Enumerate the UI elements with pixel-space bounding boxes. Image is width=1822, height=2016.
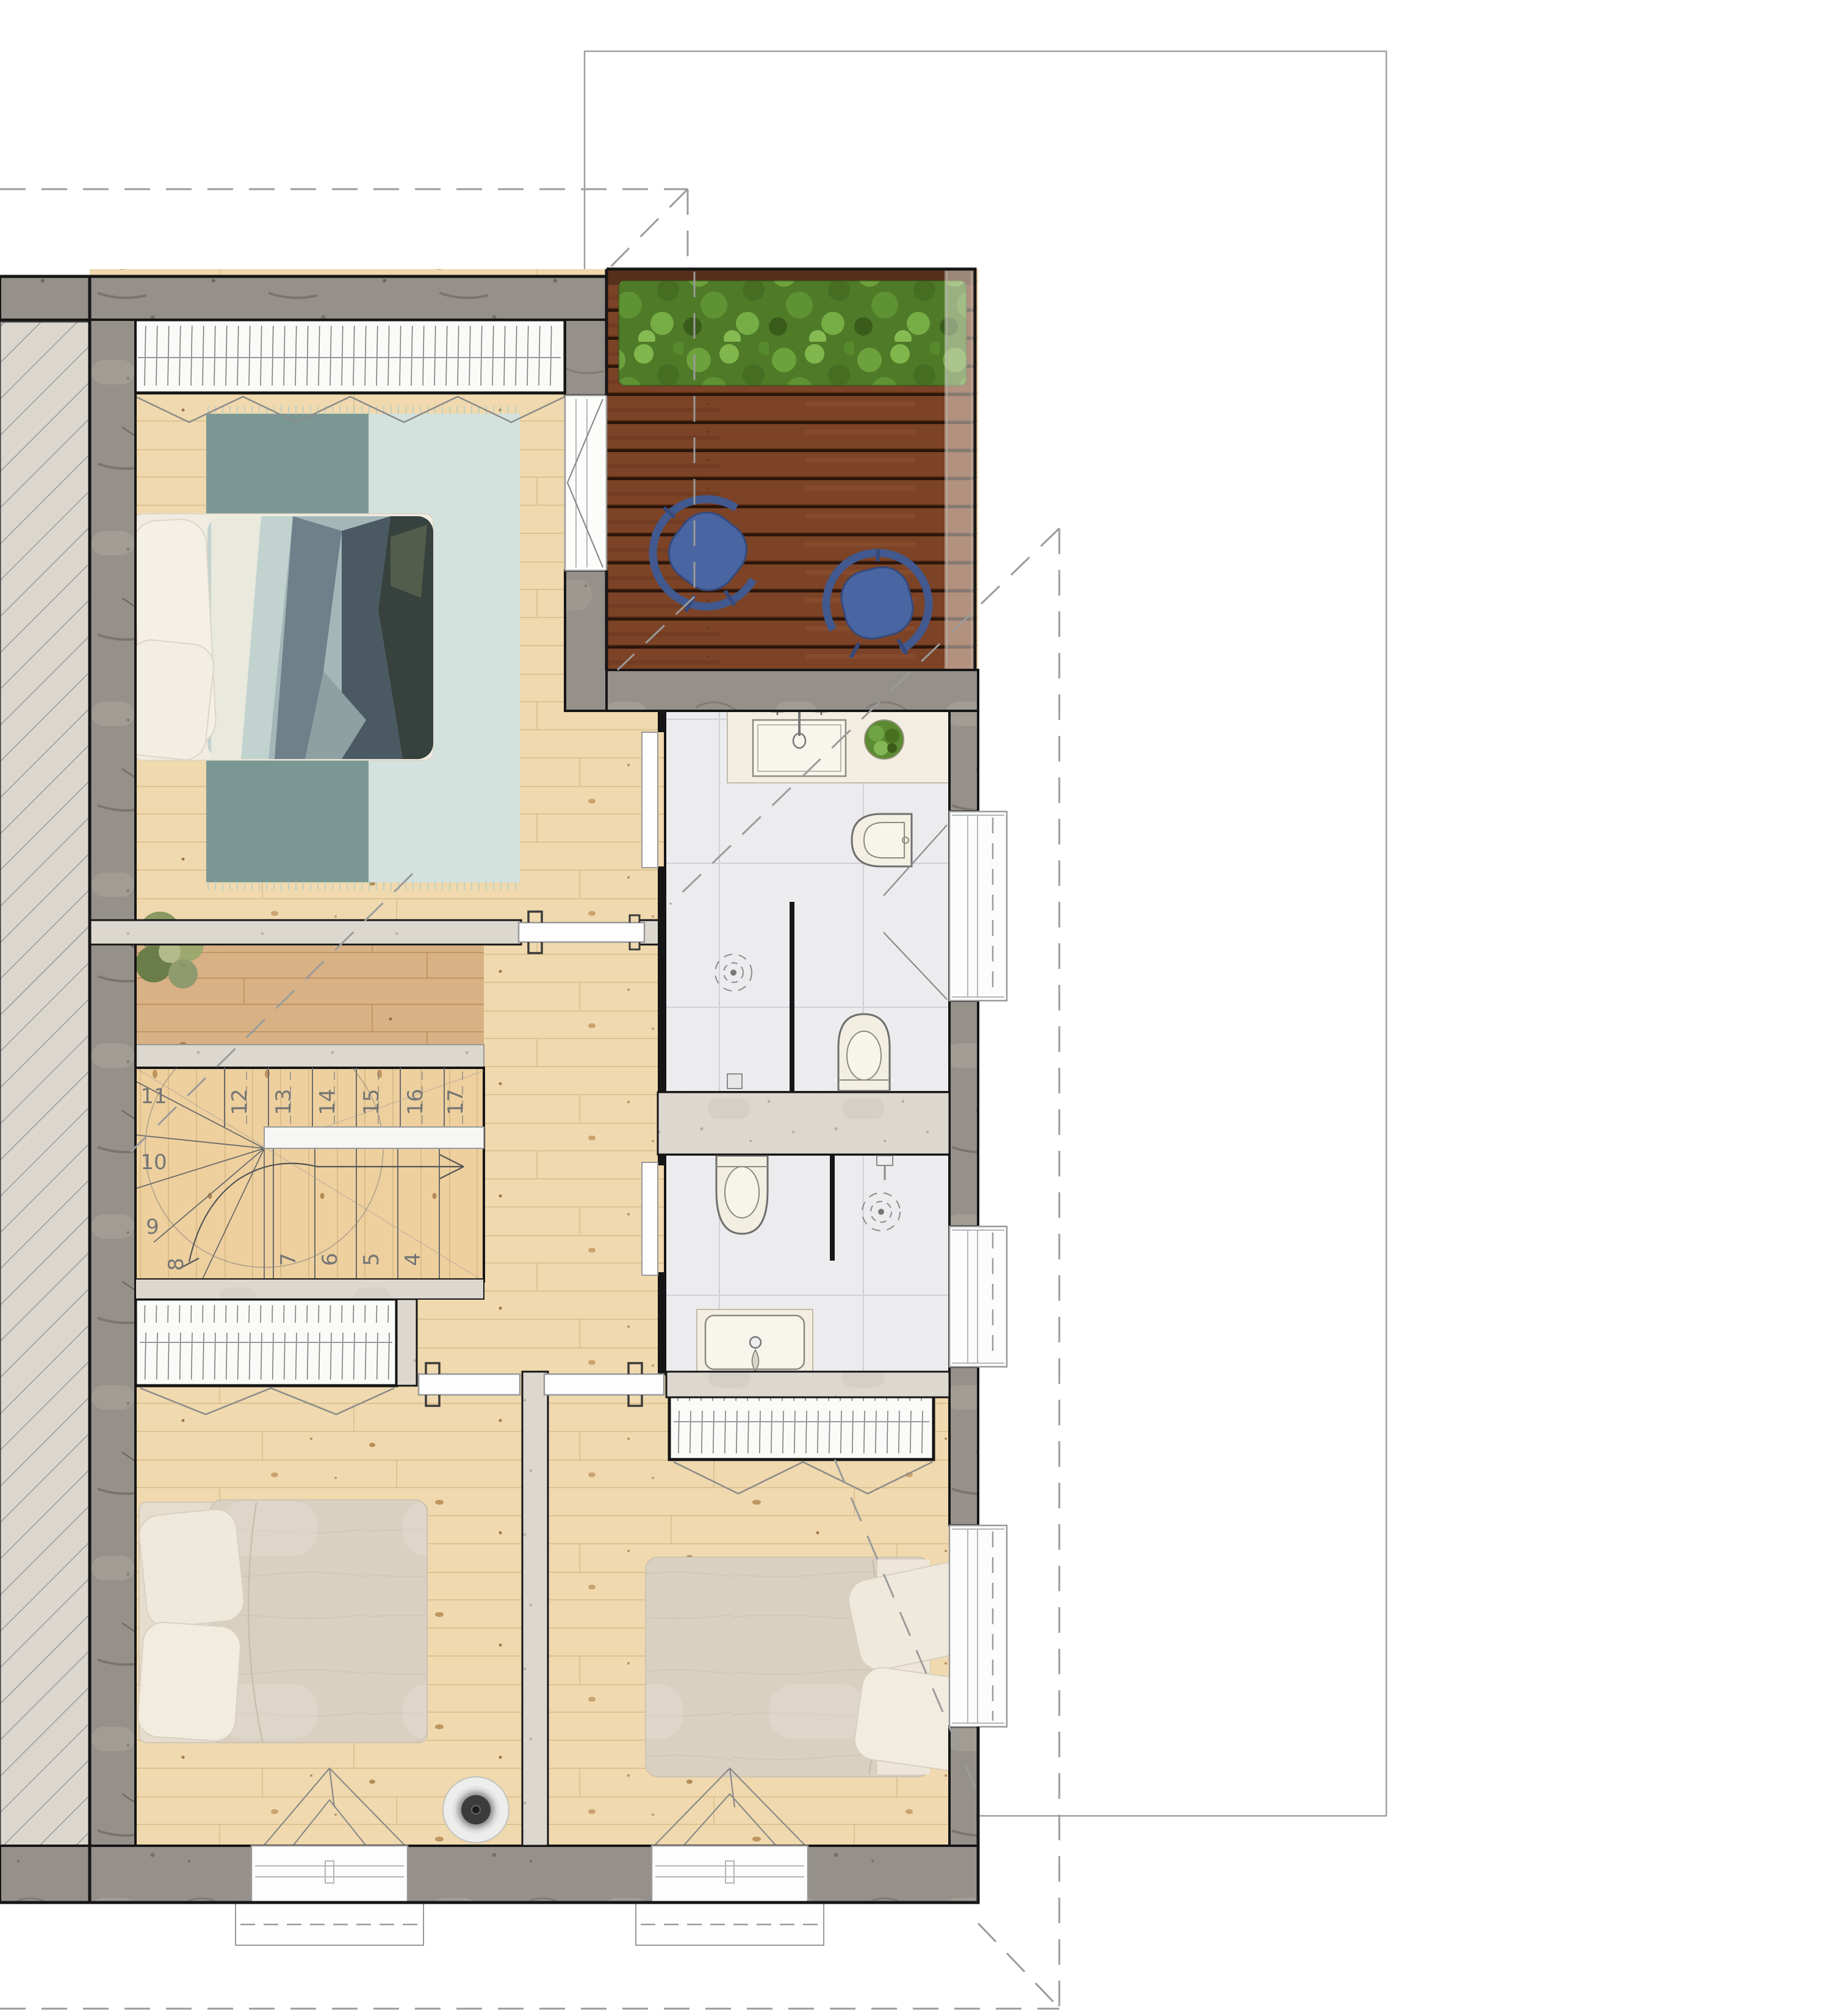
window-east-bathroom2 [949, 1226, 1007, 1367]
vanity-sink [697, 1309, 813, 1374]
potted-plant [865, 720, 904, 759]
wall-east-pier2 [949, 1001, 978, 1226]
pillow [137, 1621, 242, 1743]
wall-bathroom-divider [658, 1092, 949, 1154]
step-number: 14 [315, 1089, 340, 1115]
balcony-door [565, 395, 607, 571]
step-number: 7 [276, 1253, 301, 1266]
wall-master-east-lower [565, 571, 607, 711]
step-number: 8 [164, 1258, 189, 1271]
toilet [716, 1156, 768, 1234]
glass-railing [945, 269, 975, 670]
wall-hall-south-east [666, 1372, 949, 1397]
roof-dash-corner-br [978, 1923, 1062, 2011]
building: 12 13 14 15 16 17 11 10 9 8 7 6 5 4 [0, 269, 1007, 1945]
wall-master-east-upper [565, 320, 607, 395]
step-number: 10 [140, 1150, 167, 1175]
hedge-planter [619, 281, 967, 386]
wall-east-pier3 [949, 1367, 978, 1525]
wall-deck-south [607, 670, 978, 711]
window-south-bedroom2 [236, 1846, 423, 1945]
step-number: 16 [403, 1089, 428, 1115]
step-number: 11 [140, 1084, 167, 1109]
step-number: 13 [272, 1089, 296, 1115]
floor-plan-drawing: 12 13 14 15 16 17 11 10 9 8 7 6 5 4 [0, 0, 1822, 2016]
wall-stair-south [135, 1279, 484, 1299]
step-number: 6 [318, 1253, 342, 1266]
bathroom-ensuite [665, 707, 949, 1092]
master-bed [120, 514, 433, 762]
window-east-bedroom3 [949, 1525, 1007, 1727]
step-number: 5 [359, 1253, 384, 1266]
wall-west [90, 320, 135, 1846]
balcony-deck [607, 269, 975, 674]
wall-master-south-a [90, 920, 521, 945]
ensuite-door [642, 732, 658, 868]
wall-east-pier1 [949, 711, 978, 812]
bathroom-second [665, 1154, 949, 1374]
neighbor-building-hatch [0, 322, 90, 1846]
step-number: 15 [359, 1089, 384, 1115]
window-south-bedroom3 [636, 1846, 824, 1945]
staircase: 12 13 14 15 16 17 11 10 9 8 7 6 5 4 [135, 1029, 484, 1281]
bidet [852, 814, 912, 866]
step-number: 4 [401, 1253, 425, 1266]
step-number: 12 [228, 1089, 252, 1115]
stair-handrail [264, 1127, 484, 1148]
roof-dash-diagonal-top [607, 189, 688, 270]
floor-drain [727, 1074, 742, 1089]
wall-door-pier [397, 1299, 417, 1386]
bed [137, 1500, 427, 1743]
wall-bedroom-divider [522, 1372, 548, 1846]
wall-south [0, 1846, 978, 1903]
window-east-ensuite [949, 812, 1007, 1001]
floor-plan: 12 13 14 15 16 17 11 10 9 8 7 6 5 4 [0, 0, 1822, 2016]
toilet [838, 1014, 890, 1091]
pillow [137, 1507, 246, 1629]
ceiling-speaker [443, 1777, 509, 1843]
step-number: 17 [444, 1089, 468, 1115]
bathroom2-door [642, 1162, 658, 1275]
step-number: 9 [146, 1215, 159, 1239]
